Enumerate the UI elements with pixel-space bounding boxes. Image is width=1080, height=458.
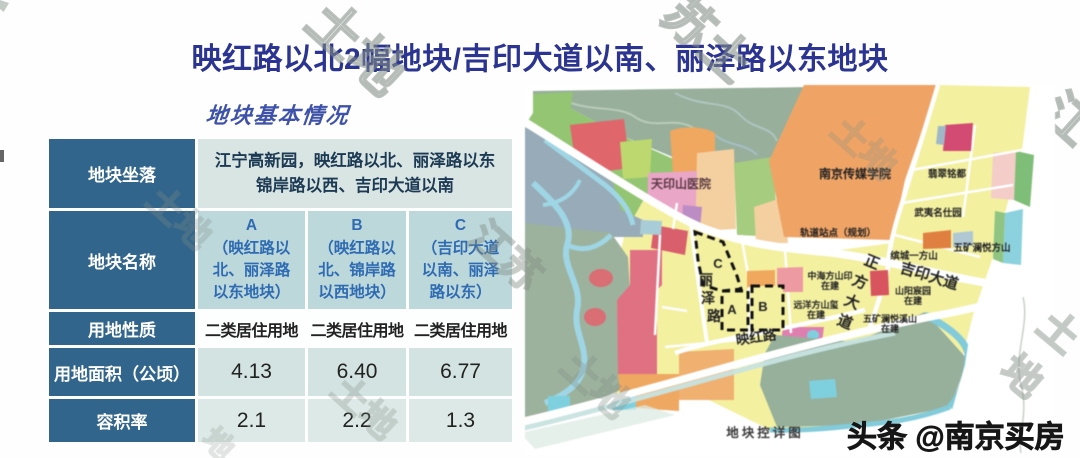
svg-text:在建: 在建	[904, 295, 923, 306]
svg-text:地块控详图: 地块控详图	[726, 425, 804, 440]
svg-text:天印山医院: 天印山医院	[651, 176, 711, 191]
svg-text:缤城一方山: 缤城一方山	[890, 250, 938, 262]
svg-text:中海方山印: 中海方山印	[807, 270, 852, 281]
svg-text:南京传媒学院: 南京传媒学院	[819, 166, 891, 181]
svg-text:泽: 泽	[701, 290, 715, 306]
svg-text:翡翠铭都: 翡翠铭都	[928, 168, 967, 180]
svg-text:C: C	[713, 256, 723, 271]
svg-text:丽: 丽	[699, 272, 713, 288]
svg-text:A: A	[727, 302, 737, 317]
svg-text:路: 路	[707, 308, 722, 324]
svg-text:五矿澜悦方山: 五矿澜悦方山	[953, 242, 1010, 254]
svg-text:在建: 在建	[821, 280, 840, 291]
svg-text:武夷名仕园: 武夷名仕园	[914, 207, 962, 219]
svg-text:轨道站点（规划）: 轨道站点（规划）	[800, 227, 876, 239]
svg-text:B: B	[758, 299, 767, 314]
svg-text:山阳宸园: 山阳宸园	[895, 285, 931, 296]
svg-text:在建: 在建	[807, 309, 826, 320]
svg-text:在建: 在建	[881, 323, 900, 334]
svg-text:远洋方山玺: 远洋方山玺	[793, 299, 838, 310]
svg-text:五矿澜悦溪山: 五矿澜悦溪山	[863, 313, 917, 324]
